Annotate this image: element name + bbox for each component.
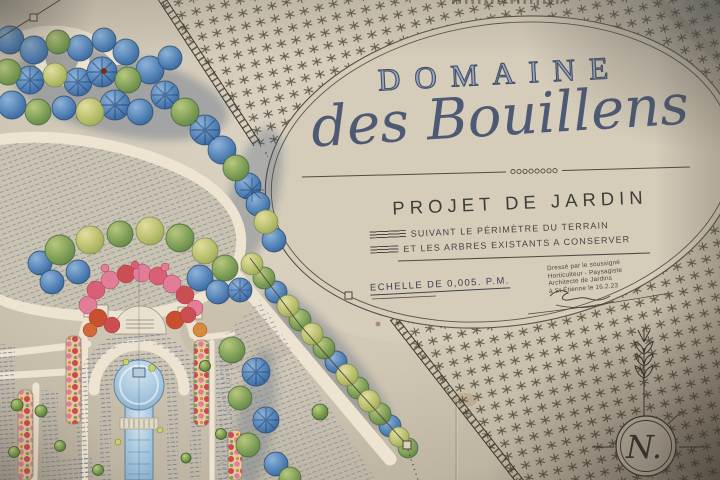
photographed-garden-plan: N. DOMAINE des Bouillens PROJET DE JARDI… [0, 0, 720, 480]
fountain-platform [133, 368, 145, 377]
triple-bar-ornament [370, 245, 398, 253]
triple-bar-ornament [370, 230, 406, 239]
survey-dot [101, 68, 107, 74]
compass-north-letter: N. [625, 428, 662, 466]
